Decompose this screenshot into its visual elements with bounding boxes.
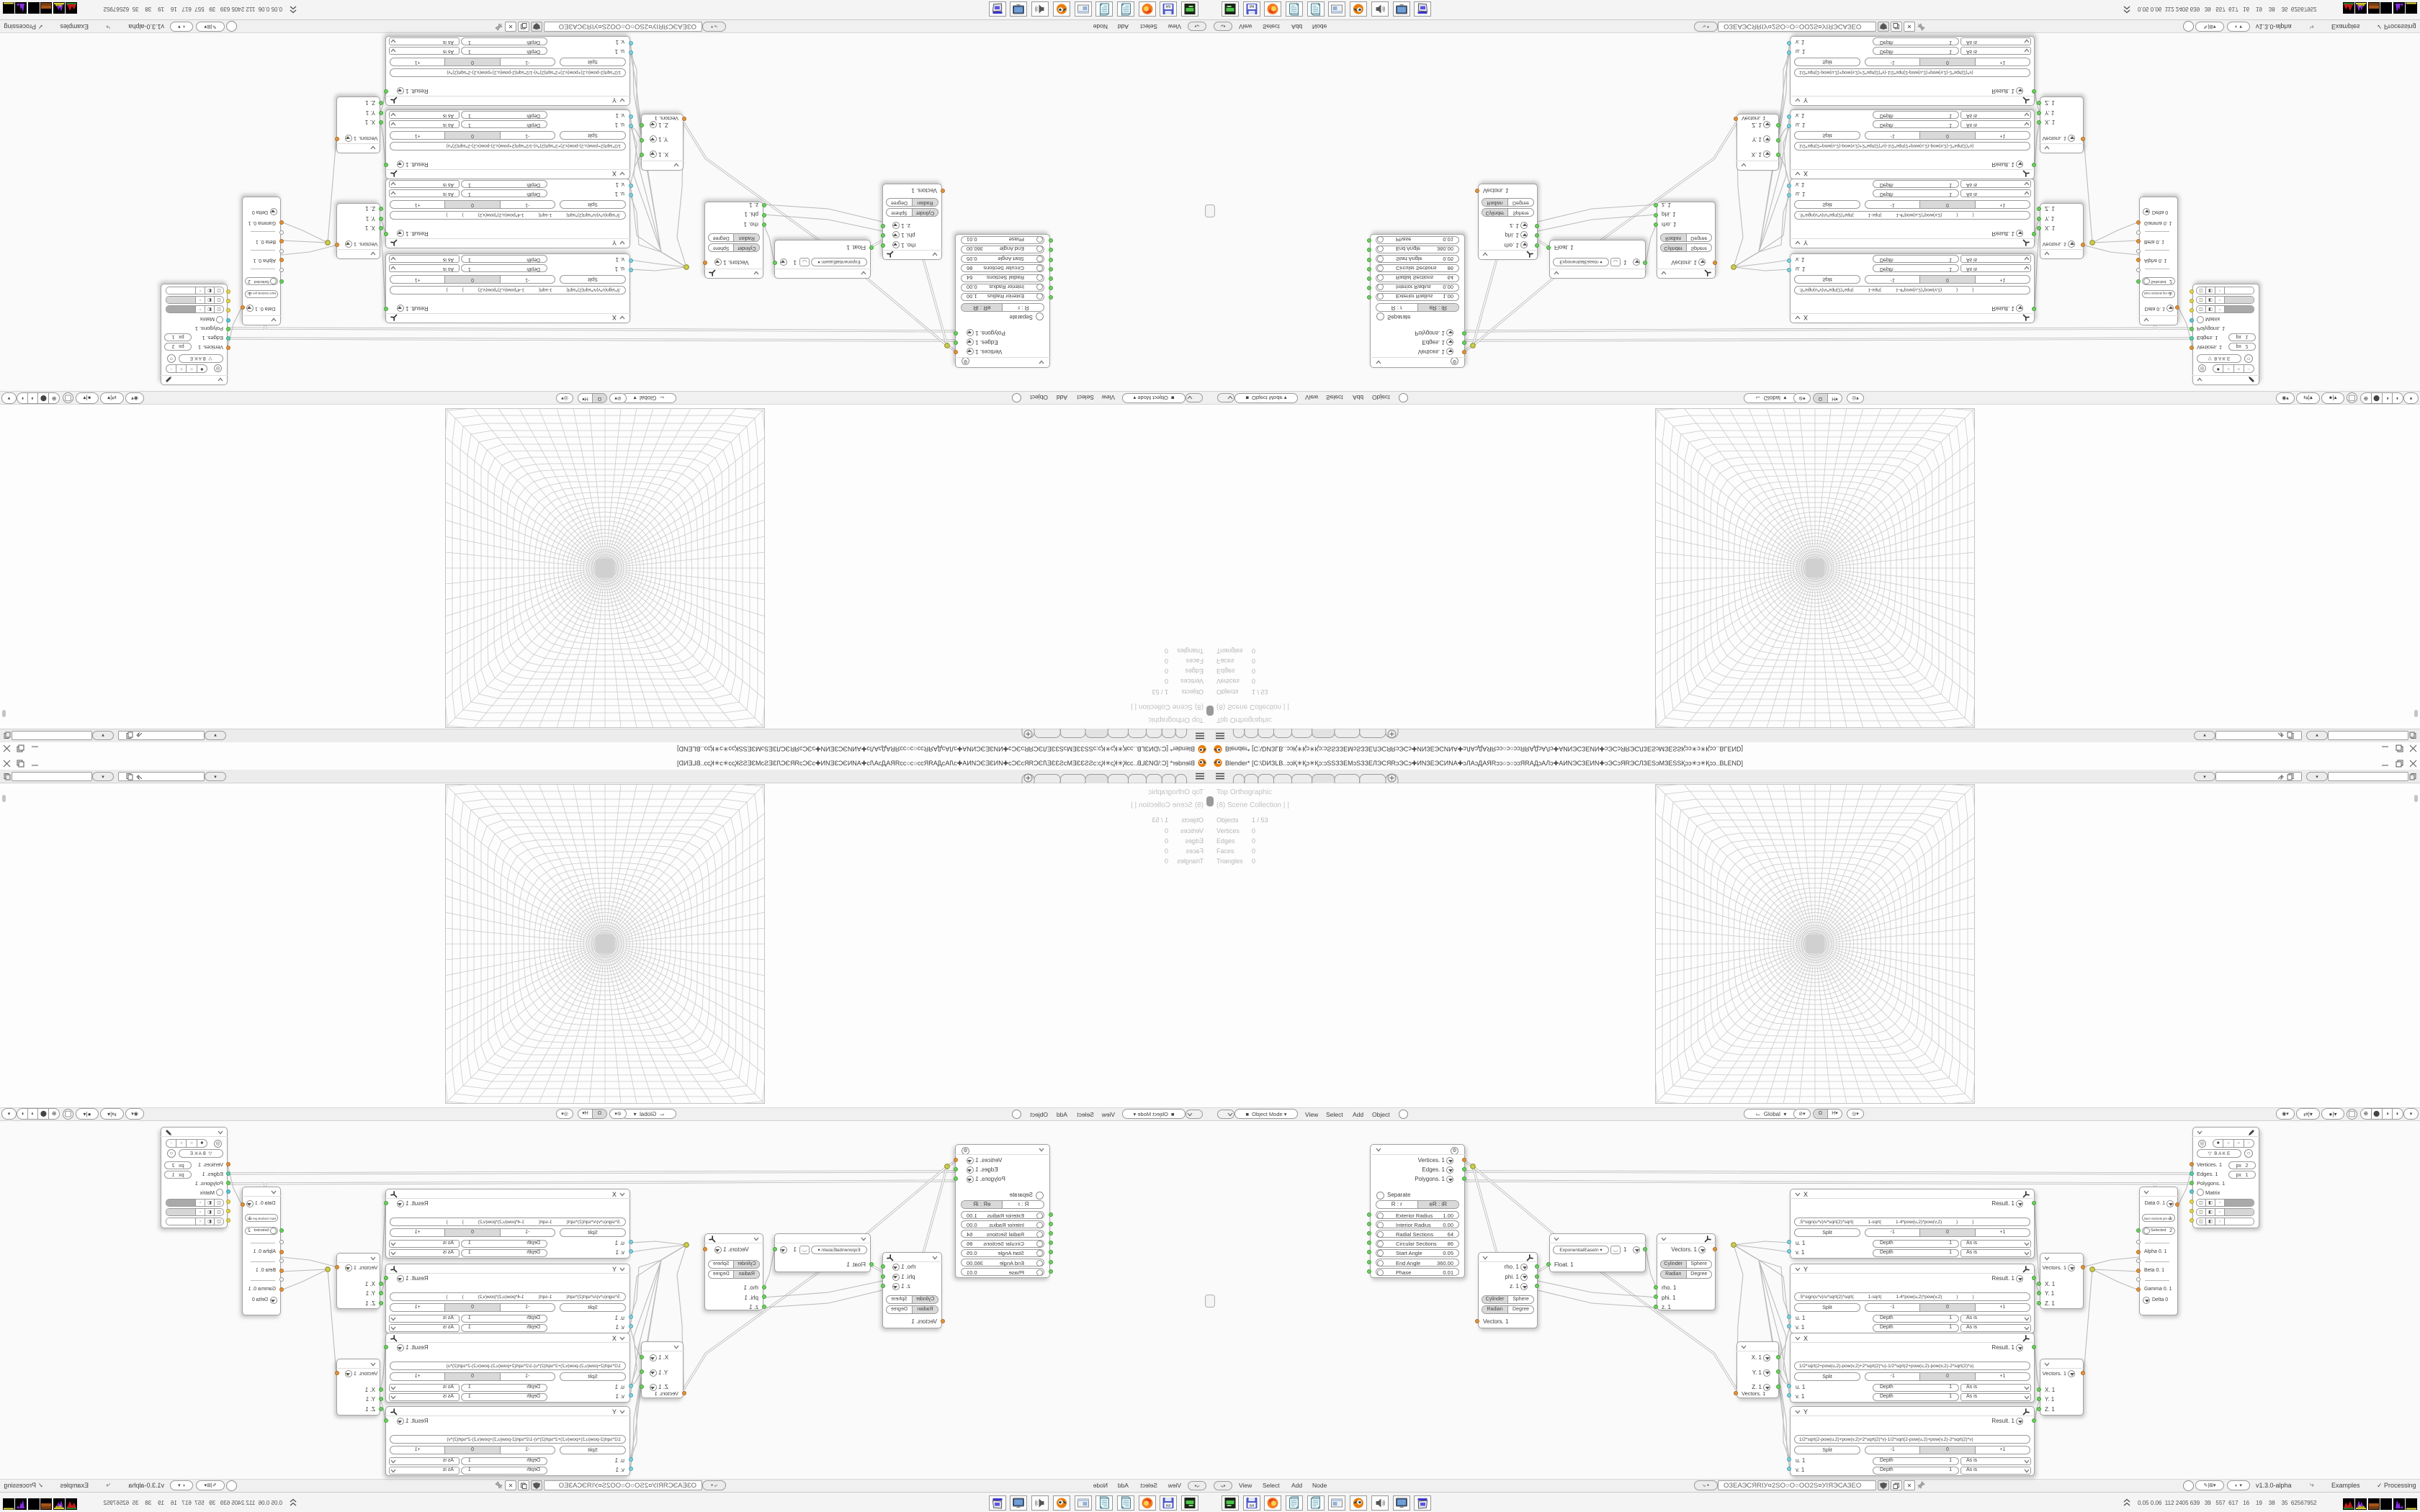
svg-text:64: 64 xyxy=(1250,1504,1254,1508)
svg-text:64: 64 xyxy=(1250,4,1254,8)
svg-text:64: 64 xyxy=(1166,4,1170,8)
svg-text:64: 64 xyxy=(1166,1504,1170,1508)
